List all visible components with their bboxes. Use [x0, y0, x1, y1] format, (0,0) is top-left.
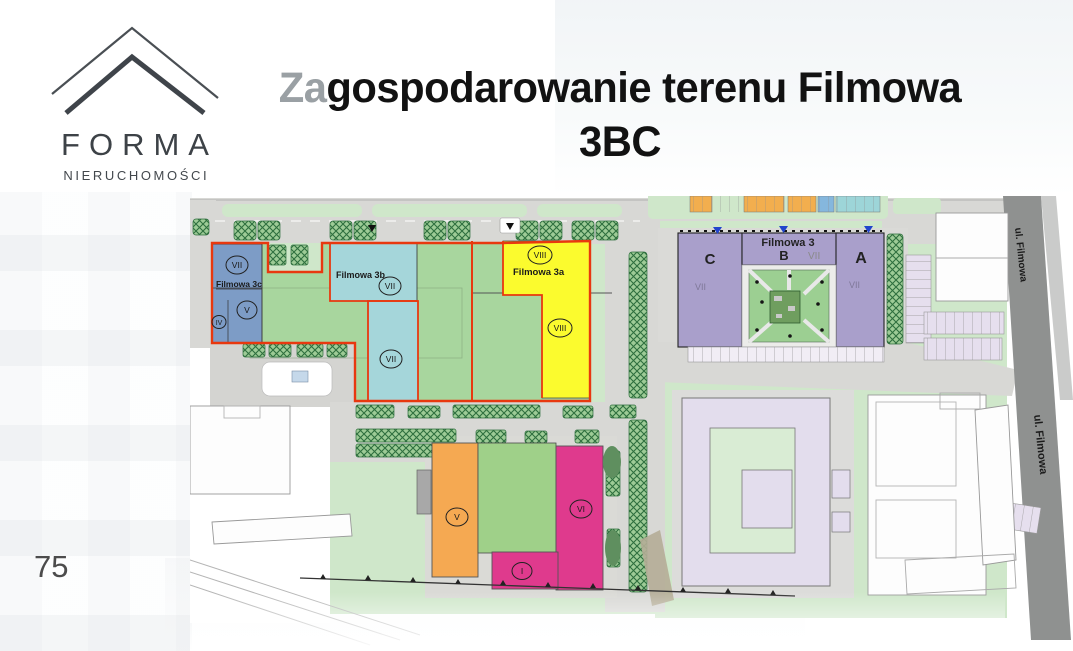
floor-v: V [454, 512, 460, 522]
logo-name: FORMA [44, 127, 226, 163]
existing-complex [682, 398, 850, 586]
roof-icon [44, 16, 226, 116]
company-logo: FORMA NIERUCHOMOŚCI [44, 16, 226, 183]
slide-title-line2: 3BC [203, 116, 1037, 170]
floor-3c-upper: VII [232, 260, 242, 270]
slide-title-line1: Zagospodarowanie terenu Filmowa [203, 62, 1037, 116]
section-a: A [855, 250, 867, 267]
section-b: B [779, 248, 788, 263]
playground [770, 291, 800, 323]
floor-3a-upper: VIII [534, 250, 547, 260]
floor-vi: VI [577, 504, 585, 514]
title-rest: gospodarowanie terenu Filmowa [326, 64, 961, 112]
background-photo-left [0, 192, 192, 651]
map-fade [190, 592, 1005, 651]
floor-3a-lower: VIII [554, 323, 567, 333]
pavement-details [262, 362, 332, 396]
label-filmowa-3b: Filmowa 3b [336, 270, 386, 280]
floor-3b-upper: VII [385, 281, 395, 291]
green-roof [478, 443, 556, 553]
floor-3-c: VII [695, 282, 706, 292]
floor-3c-low: IV [216, 320, 223, 327]
site-plan: Filmowa 3c Filmowa 3b Filmowa 3a VII V I… [190, 196, 1073, 651]
floor-3b-lower: VII [386, 354, 396, 364]
floor-3c-mid: V [244, 305, 250, 315]
page-number: 75 [34, 549, 68, 585]
parking-stalls-colored [690, 196, 880, 212]
label-filmowa-3a: Filmowa 3a [513, 267, 565, 278]
floor-3-b: VII [808, 251, 820, 262]
building-v [432, 443, 478, 577]
label-filmowa-3c: Filmowa 3c [216, 279, 262, 289]
section-c: C [705, 251, 716, 268]
title-highlight: Za [279, 64, 327, 112]
slide-title: Zagospodarowanie terenu Filmowa 3BC [203, 62, 1037, 170]
logo-subtitle: NIERUCHOMOŚCI [44, 168, 226, 183]
floor-3-a: VII [849, 280, 860, 290]
floor-i: I [521, 566, 523, 576]
slide: FORMA NIERUCHOMOŚCI Zagospodarowanie ter… [0, 0, 1073, 651]
